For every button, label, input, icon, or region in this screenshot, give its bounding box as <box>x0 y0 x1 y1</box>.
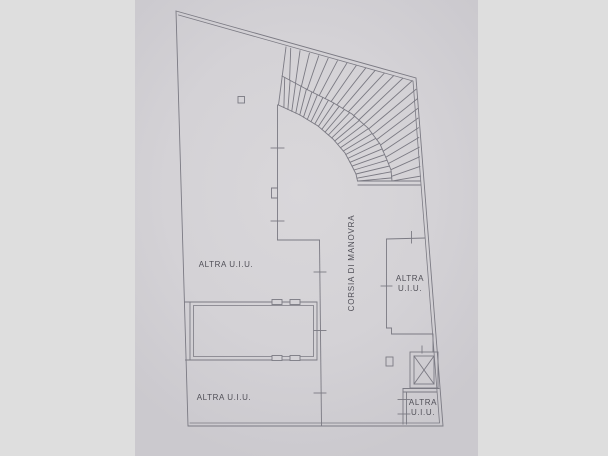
corridor-walls <box>271 105 326 426</box>
room-label-right-line1: ALTRA <box>385 274 435 284</box>
wall-lower <box>320 240 322 426</box>
scanned-floor-plan: ALTRA U.I.U. ALTRA U.I.U. ALTRA U.I.U. A… <box>0 0 608 456</box>
garage-box <box>185 300 318 361</box>
ramp-bottom-cap <box>358 181 421 185</box>
room-label-right: ALTRA U.I.U. <box>385 274 435 294</box>
elevator-shaft <box>386 346 438 388</box>
elevator-x-icon <box>414 356 434 384</box>
plan-boundary <box>176 11 443 426</box>
ramp-hatch-lower-lane <box>284 78 392 182</box>
column-marker <box>238 97 245 104</box>
room-label-upper-left: ALTRA U.I.U. <box>179 260 273 270</box>
curved-ramp-hatching <box>279 47 421 185</box>
wall-notch <box>272 188 278 198</box>
room-label-corner-line1: ALTRA <box>400 398 446 408</box>
corridor-label: CORSIA DI MANOVRA <box>347 215 357 312</box>
room-label-corner-line2: U.I.U. <box>400 408 446 418</box>
floor-plan-drawing <box>0 0 608 456</box>
ramp-middle-line <box>282 76 392 181</box>
room-label-lower-left: ALTRA U.I.U. <box>177 393 271 403</box>
room-label-right-line2: U.I.U. <box>385 284 435 294</box>
pillar <box>386 357 393 366</box>
room-label-corner: ALTRA U.I.U. <box>400 398 446 418</box>
